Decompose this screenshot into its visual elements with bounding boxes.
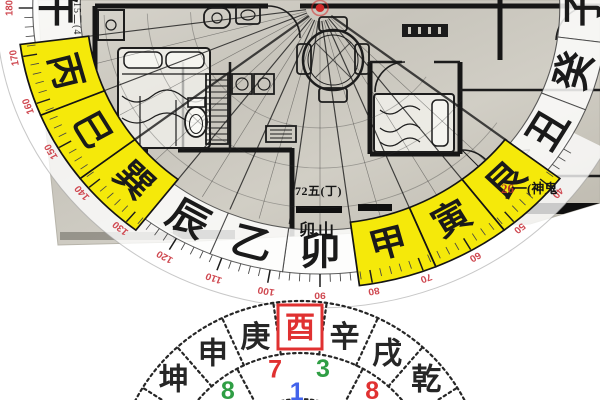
wheel-character: 辛 <box>330 320 360 354</box>
wheel-number: 3 <box>316 355 330 383</box>
wheel-character: 戌 <box>372 337 402 370</box>
sitting-direction-label: 卯山 <box>299 216 337 240</box>
label-smudge <box>402 24 448 37</box>
floor-area-label: 72五(丁) <box>295 182 342 199</box>
wheel-character: 乾 <box>411 364 441 397</box>
side-note-label: 15二(4 <box>71 2 86 35</box>
compass-center-dot <box>316 4 325 12</box>
mountain-character: 子 <box>561 0 600 27</box>
bed-icon <box>374 94 454 152</box>
corner-note-text: 一(神鬼 <box>514 181 557 196</box>
toilet-icon <box>185 98 207 137</box>
wheel-number: 8 <box>365 377 379 400</box>
degree-tick <box>25 27 34 28</box>
wheel-number-line <box>237 369 259 400</box>
wheel-character: 申 <box>198 337 228 370</box>
degree-number: 90 <box>314 290 326 301</box>
wheel-character: 酉 <box>285 312 315 345</box>
wheel-number-line <box>341 369 363 400</box>
bagua-wheel-diagram: 坤申庚酉辛戌乾87381 <box>125 301 475 400</box>
feng-shui-compass-page: 405060708090100110120130140150160170180子… <box>0 0 600 400</box>
wheel-character: 庚 <box>240 321 270 354</box>
corner-note-number: 26 <box>501 181 514 196</box>
corner-note-label: 26一(神鬼 <box>501 178 557 197</box>
scene-canvas: 405060708090100110120130140150160170180子… <box>0 0 600 400</box>
degree-tick <box>299 273 300 281</box>
degree-tick <box>340 273 341 281</box>
wheel-character: 坤 <box>159 364 189 397</box>
wall-bar <box>358 204 392 211</box>
wheel-number: 8 <box>221 377 235 400</box>
degree-number: 180 <box>4 0 15 16</box>
wheel-number: 1 <box>290 378 304 400</box>
wheel-number: 7 <box>268 356 282 384</box>
